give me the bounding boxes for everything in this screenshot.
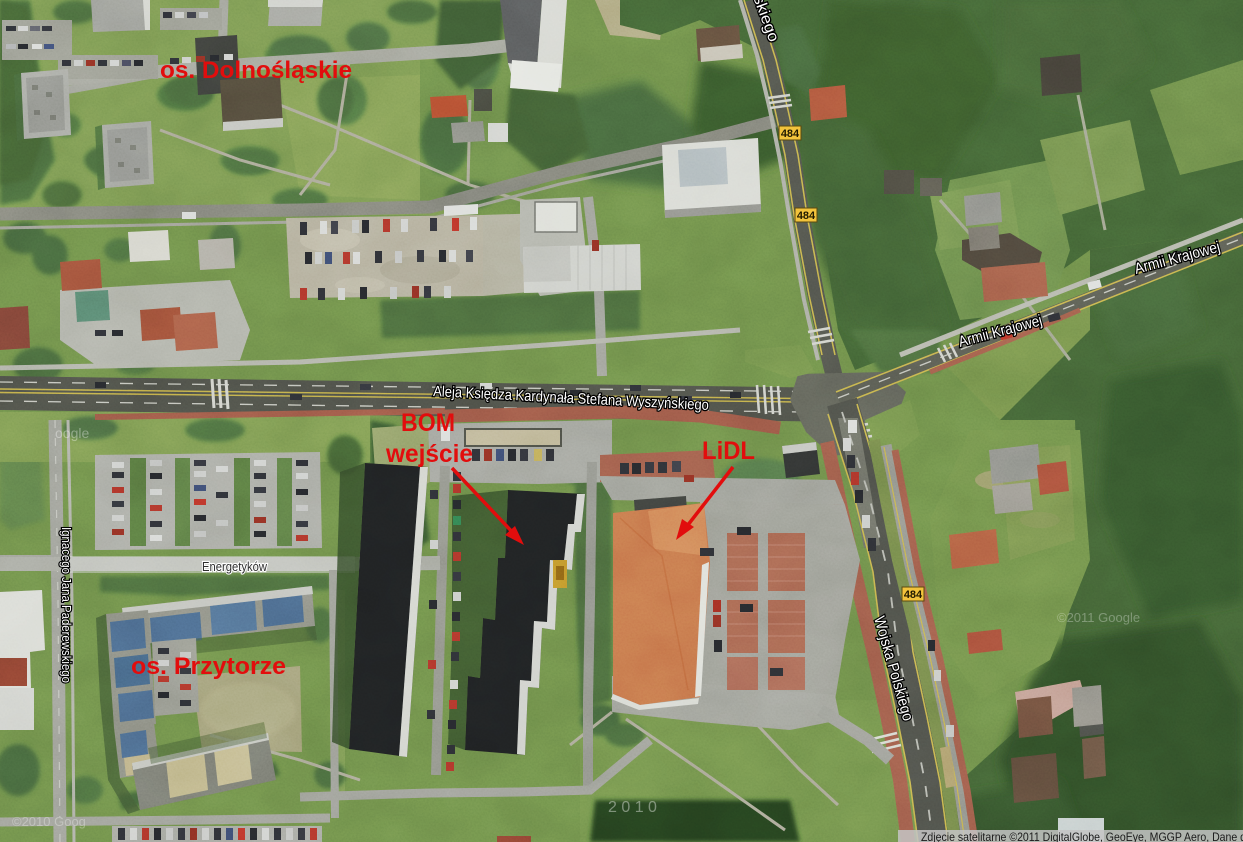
svg-text:Zdjęcie satelitarne ©2011 Digi: Zdjęcie satelitarne ©2011 DigitalGlobe, …: [921, 830, 1243, 842]
svg-text:484: 484: [797, 210, 816, 222]
svg-text:LiDL: LiDL: [702, 437, 755, 465]
svg-text:BOM: BOM: [401, 409, 455, 437]
svg-text:484: 484: [781, 128, 800, 140]
svg-text:Energetyków: Energetyków: [202, 560, 268, 574]
svg-text:os. Przytorze: os. Przytorze: [131, 653, 286, 680]
svg-text:wejście: wejście: [385, 440, 473, 468]
svg-text:484: 484: [904, 589, 923, 601]
svg-text:©2010 Goog: ©2010 Goog: [12, 814, 86, 829]
svg-text:2 0 1 0: 2 0 1 0: [608, 799, 657, 816]
svg-text:oogle: oogle: [55, 425, 89, 441]
svg-text:os. Dolnośląskie: os. Dolnośląskie: [160, 57, 352, 84]
svg-text:Ignacego Jana Paderewskiego: Ignacego Jana Paderewskiego: [59, 527, 73, 683]
svg-text:©2011 Google: ©2011 Google: [1057, 610, 1140, 625]
